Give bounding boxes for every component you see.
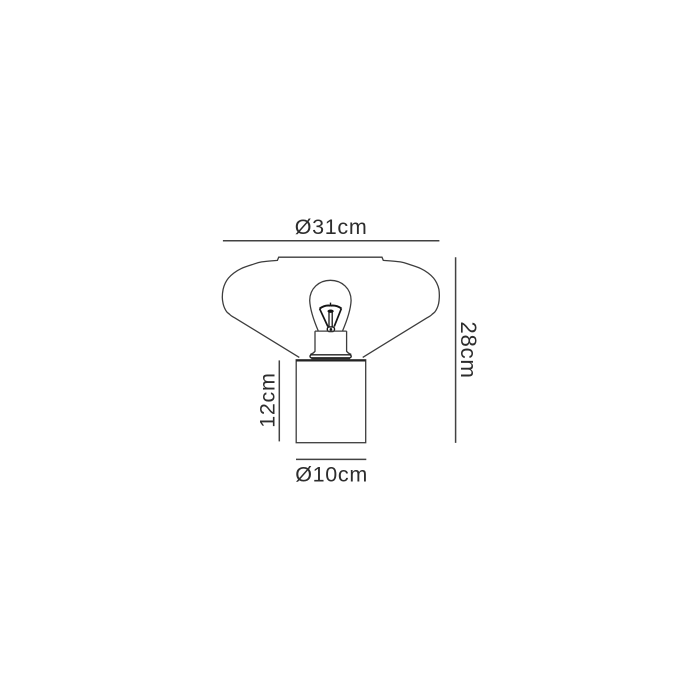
svg-text:12cm: 12cm	[255, 372, 279, 427]
svg-text:Ø31cm: Ø31cm	[295, 215, 368, 239]
svg-text:28cm: 28cm	[456, 321, 481, 378]
svg-text:Ø10cm: Ø10cm	[295, 462, 368, 486]
